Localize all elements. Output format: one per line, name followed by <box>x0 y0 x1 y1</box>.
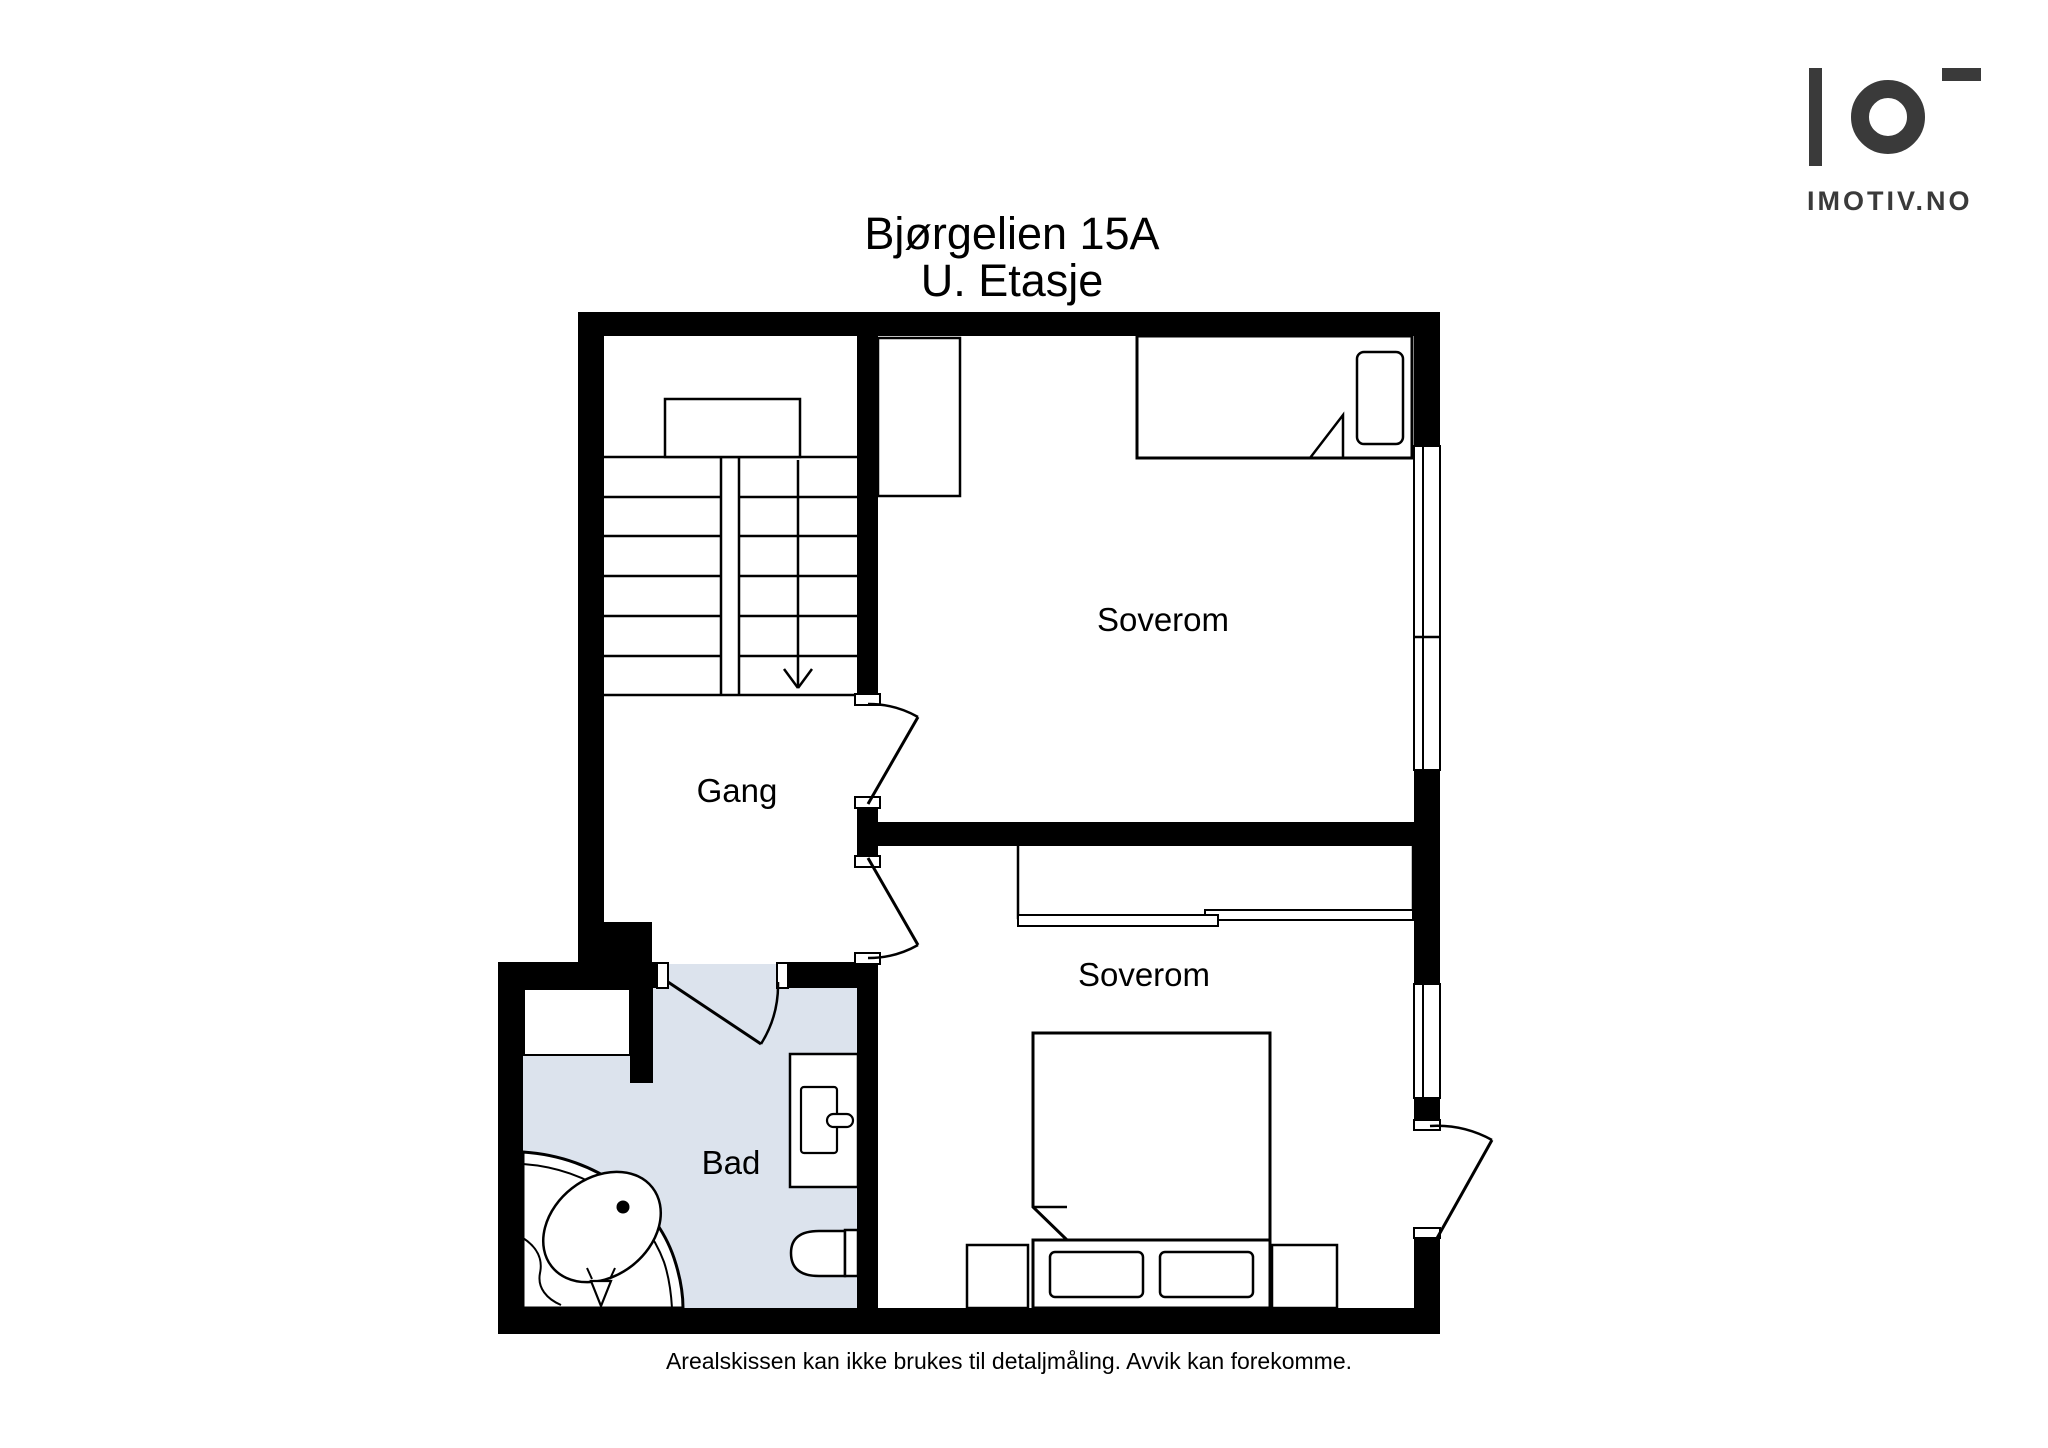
wall-left-upper <box>578 312 604 964</box>
staircase <box>604 399 858 695</box>
wardrobe-door-right <box>1205 910 1413 920</box>
wall-middle <box>872 822 1416 846</box>
bathtub-drain <box>617 1201 630 1214</box>
logo-brand-text: IMOTIV.NO <box>1807 186 2005 217</box>
wardrobe-door-left <box>1018 915 1218 926</box>
room-label-soverom-bottom: Soverom <box>1078 956 1210 994</box>
wall-right-top <box>1414 312 1440 446</box>
imotiv-logo: IMOTIV.NO <box>1805 64 2005 219</box>
wardrobe <box>1018 843 1413 918</box>
bathroom-counter <box>524 989 630 1055</box>
nightstand-right <box>1272 1245 1337 1308</box>
door-exterior <box>1430 1126 1492 1240</box>
floor-plan-page: Bjørgelien 15A U. Etasje Soverom Gang So… <box>0 0 2048 1448</box>
bedroom-top-furniture <box>878 336 1412 496</box>
wall-right-mid <box>1414 770 1440 984</box>
plan-title-address: Bjørgelien 15A <box>712 210 1312 257</box>
double-bed-duvet <box>1033 1033 1270 1240</box>
logo-dash-icon <box>1942 68 1981 81</box>
wall-divider-bottom <box>857 964 878 1334</box>
window-bottom <box>1414 984 1440 1098</box>
plan-title-floor: U. Etasje <box>712 257 1312 304</box>
wall-bath-left <box>498 962 523 1334</box>
wall-top <box>578 312 1440 336</box>
nightstand-left <box>967 1245 1028 1308</box>
room-label-soverom-top: Soverom <box>1097 601 1229 639</box>
window-top <box>1414 446 1440 770</box>
footer-disclaimer: Arealskissen kan ikke brukes til detaljm… <box>609 1348 1409 1375</box>
toilet-bowl <box>791 1231 845 1276</box>
toilet-tank <box>845 1230 858 1276</box>
wall-bath-stub <box>630 988 653 1083</box>
closet <box>878 338 960 496</box>
pillow <box>1357 352 1403 444</box>
room-label-bad: Bad <box>702 1144 761 1182</box>
wall-bath-top-left <box>498 962 668 988</box>
logo-bar-icon <box>1809 68 1822 166</box>
wall-bottom <box>498 1308 1440 1334</box>
pillow-right <box>1160 1252 1253 1297</box>
plan-title: Bjørgelien 15A U. Etasje <box>712 210 1312 304</box>
pillow-left <box>1050 1252 1143 1297</box>
room-label-gang: Gang <box>697 772 778 810</box>
sink-faucet <box>827 1114 853 1127</box>
wall-divider-top <box>857 312 878 694</box>
logo-circle-icon <box>1851 80 1925 154</box>
stair-landing <box>665 399 800 457</box>
door-bedroom-bottom <box>868 858 918 958</box>
bedroom-bottom-furniture <box>967 843 1413 1308</box>
door-bedroom-top <box>868 704 918 804</box>
